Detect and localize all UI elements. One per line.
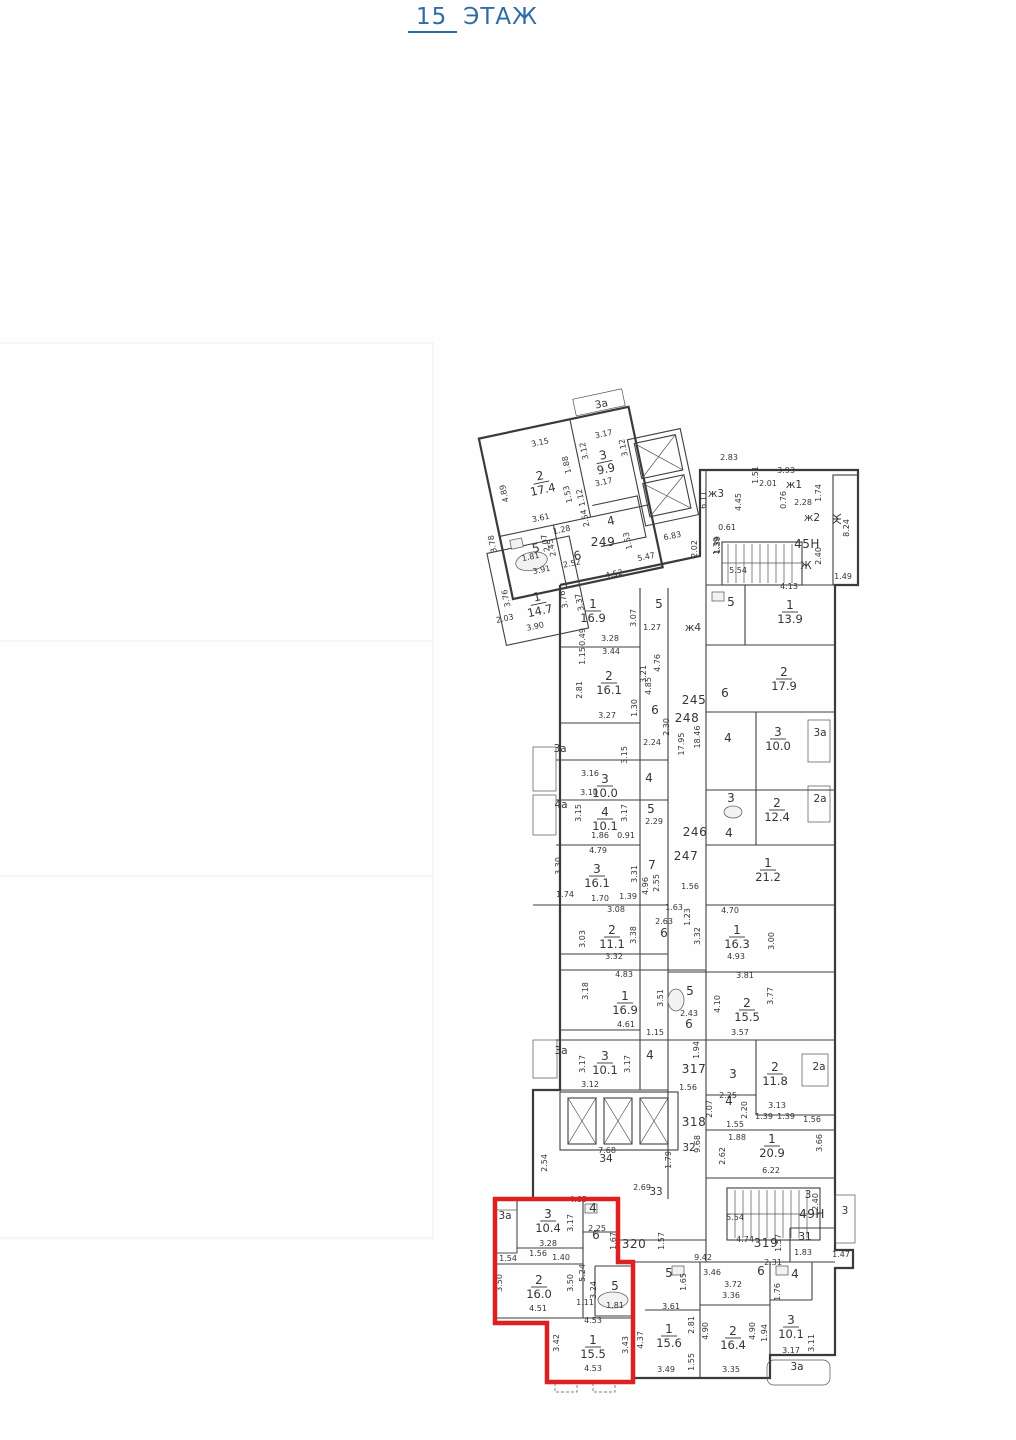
room-number-label: 3: [601, 772, 609, 786]
dimension-label: 3.03: [578, 930, 587, 948]
dimension-label: 3.31: [630, 865, 639, 883]
dimension-label: 2.81: [687, 1316, 696, 1334]
dimension-label: 3.00: [767, 932, 776, 950]
dimension-label: 3.50: [566, 1274, 575, 1292]
dimension-label: 3.15: [574, 804, 583, 822]
dimension-label: 3.17: [620, 804, 629, 822]
zone-label: ж1: [786, 479, 802, 491]
dimension-label: 3.17: [566, 1214, 575, 1232]
dimension-label: 1.81: [606, 1301, 624, 1310]
room-number-label: 6: [757, 1264, 765, 1278]
room-number-label: 2: [605, 669, 613, 683]
dimension-label: 2.83: [720, 453, 738, 462]
zone-label: Ж: [832, 513, 844, 525]
dimension-label: 1.94: [692, 1041, 701, 1059]
dimension-label: 1.63: [665, 903, 683, 912]
dimension-label: 1.28: [552, 524, 571, 537]
room-number-label: 5: [655, 597, 663, 611]
dimension-label: 1.15: [578, 647, 587, 665]
zone-label: 3а: [790, 1361, 803, 1373]
room-number-label: 4: [646, 1048, 654, 1062]
dimension-label: 1.56: [681, 882, 699, 891]
apartment-number: 249: [591, 535, 615, 549]
dimension-label: 0.91: [617, 831, 635, 840]
zone-label: 2а: [813, 793, 826, 805]
room-number-label: 3: [598, 448, 608, 463]
room-area-label: 15.6: [656, 1336, 682, 1350]
apartment-number: 245: [682, 693, 706, 707]
dimension-label: 3.24: [589, 1281, 598, 1299]
dimension-label: 3.38: [629, 926, 638, 944]
dimension-label: 3.66: [815, 1134, 824, 1152]
room-number-label: 3: [544, 1207, 552, 1221]
room-number-label: 6: [572, 548, 582, 563]
room-number-label: 1: [589, 597, 597, 611]
dimension-label: 3.90: [526, 620, 545, 633]
room-area-label: 17.4: [529, 480, 557, 499]
room-number-label: 2: [729, 1324, 737, 1338]
dimension-label: 1.40: [552, 1253, 570, 1262]
dimension-label: 3.61: [531, 512, 550, 525]
room-number-label: 7: [648, 858, 656, 872]
dimension-label: 3.16: [581, 769, 599, 778]
dimension-label: 1.56: [679, 1083, 697, 1092]
room-number-label: 6: [660, 926, 668, 940]
dimension-label: 1.53: [622, 531, 635, 550]
elevator-shafts-lower: [560, 1092, 678, 1150]
apartment-number: 319: [754, 1236, 778, 1250]
apartment-number: 247: [674, 849, 698, 863]
room-number-label: 2: [535, 468, 545, 483]
room-number-label: 1: [589, 1333, 597, 1347]
dimension-label: 1.27: [643, 623, 661, 632]
room-area-label: 16.1: [584, 876, 610, 890]
dimension-label: 3.15: [620, 746, 629, 764]
dimension-label: 2.01: [759, 479, 777, 488]
dimension-label: 3.46: [703, 1268, 721, 1277]
dimension-label: 3.93: [777, 466, 795, 475]
room-area-label: 17.9: [771, 679, 797, 693]
zone-label: 3: [805, 1189, 812, 1201]
room-area-label: 16.3: [724, 937, 750, 951]
dimension-label: 3.18: [581, 982, 590, 1000]
apartment-number: 318: [682, 1115, 706, 1129]
room-area-label: 16.0: [526, 1287, 552, 1301]
dimension-label: 3.07: [629, 609, 638, 627]
room-area-label: 11.8: [762, 1074, 788, 1088]
dimension-label: 3.30: [554, 857, 563, 875]
dimension-label: 0.76: [779, 491, 788, 509]
dimension-label: 1.30: [630, 699, 639, 717]
dimension-label: 4.61: [617, 1020, 635, 1029]
dimension-label: 3.32: [693, 927, 702, 945]
dimension-label: 2.29: [645, 817, 663, 826]
dimension-label: 3.28: [601, 634, 619, 643]
dimension-label: 1.88: [728, 1133, 746, 1142]
dimension-label: 3.13: [768, 1101, 786, 1110]
dimension-label: 2.24: [643, 738, 661, 747]
room-number-label: 6: [592, 1228, 600, 1242]
dimension-label: 17.95: [677, 733, 686, 756]
room-number-label: 4: [606, 513, 616, 528]
room-number-label: 4: [791, 1267, 799, 1281]
dimension-label: 2.31: [764, 1258, 782, 1267]
room-area-label: 14.7: [526, 601, 554, 620]
room-number-label: 4: [724, 731, 732, 745]
dimension-label: 3.28: [539, 1239, 557, 1248]
apartment-number: 246: [683, 825, 707, 839]
dimension-label: 1.74: [814, 484, 823, 502]
apartment-number: 248: [675, 711, 699, 725]
room-number-label: 1: [621, 989, 629, 1003]
dimension-label: 4.83: [615, 970, 633, 979]
room-number-label: 1: [532, 589, 542, 604]
dimension-label: 3.57: [731, 1028, 749, 1037]
staircase-upper: [722, 542, 802, 585]
dimension-label: 1.56: [803, 1115, 821, 1124]
room-number-label: 3: [593, 862, 601, 876]
room-area-label: 13.9: [777, 612, 803, 626]
dimension-label: 3.81: [736, 971, 754, 980]
dimension-label: 3.17: [594, 476, 613, 489]
dimension-label: 4.96: [641, 877, 650, 895]
room-number-label: 4: [601, 805, 609, 819]
dimension-label: 4.10: [713, 995, 722, 1013]
scanned-floor-plan-page: 15ЭТАЖ: [0, 0, 1016, 1440]
zone-label: 31: [798, 1231, 811, 1243]
room-number-label: 3: [601, 1049, 609, 1063]
dimension-label: 3.17: [782, 1346, 800, 1355]
dimension-label: 4.90: [701, 1322, 710, 1340]
elevator-shafts-upper: [627, 429, 698, 526]
room-area-label: 10.0: [592, 786, 618, 800]
dimension-label: 2.28: [794, 498, 812, 507]
room-number-label: 5: [727, 595, 735, 609]
room-number-label: 2: [771, 1060, 779, 1074]
room-area-label: 10.1: [592, 819, 618, 833]
room-number-label: 3: [727, 791, 735, 805]
room-number-label: 1: [786, 598, 794, 612]
dimension-label: 2.62: [718, 1147, 727, 1165]
dimension-label: 3.43: [621, 1336, 630, 1354]
dimension-label: 4.37: [636, 1331, 645, 1349]
zone-label: 34: [599, 1153, 613, 1165]
dimension-label: 4.51: [529, 1304, 547, 1313]
zone-label: 3: [842, 1205, 849, 1217]
dimension-label: 3.77: [766, 987, 775, 1005]
room-area-label: 16.1: [596, 683, 622, 697]
room-area-label: 15.5: [580, 1347, 606, 1361]
dimension-label: 1.39: [619, 892, 637, 901]
dimension-label: 2.30: [662, 718, 671, 736]
dimension-label: 1.94: [760, 1324, 769, 1342]
room-number-label: 3: [774, 725, 782, 739]
zone-label: 3а: [554, 1045, 567, 1057]
room-number-label: 1: [665, 1322, 673, 1336]
zone-label: 32: [682, 1142, 695, 1154]
dimension-label: 1.55: [687, 1353, 696, 1371]
dimension-label: 1.74: [556, 890, 574, 899]
room-number-label: 2: [608, 923, 616, 937]
room-number-label: 5: [647, 802, 655, 816]
dimension-label: 3.17: [594, 428, 613, 441]
dimension-label: 2.69: [633, 1183, 651, 1192]
dimension-label: 4.93: [727, 952, 745, 961]
apartment-number: 317: [682, 1062, 706, 1076]
room-area-label: 10.0: [765, 739, 791, 753]
zone-label: 3а: [553, 743, 566, 755]
zone-label: ж4: [685, 622, 701, 634]
dimension-label: 0.49: [578, 628, 587, 646]
zone-label: Ж: [800, 560, 812, 572]
dimension-label: 4.70: [721, 906, 739, 915]
room-number-label: 2: [743, 996, 751, 1010]
dimension-label: 3.78: [486, 534, 499, 553]
dimension-label: 4.76: [653, 654, 662, 672]
room-area-label: 20.9: [759, 1146, 785, 1160]
room-number-label: 6: [651, 703, 659, 717]
zone-label: 33: [649, 1186, 662, 1198]
floor-plan-drawing: 3.154.891.881.533.611.282.452.071.812.52…: [0, 0, 1016, 1440]
dimension-label: 6.22: [762, 1166, 780, 1175]
room-number-label: 1: [768, 1132, 776, 1146]
dimension-label: 1.55: [726, 1120, 744, 1129]
room-number-label: 3: [729, 1067, 737, 1081]
room-number-label: 5: [611, 1279, 619, 1293]
room-area-label: 11.1: [599, 937, 625, 951]
dimension-label: 6.83: [663, 530, 682, 543]
dimension-label: 5.54: [729, 566, 747, 575]
dimension-label: 1.56: [529, 1249, 547, 1258]
room-number-label: 4: [645, 771, 653, 785]
room-area-label: 12.4: [764, 810, 790, 824]
dimension-label: 2.20: [740, 1101, 749, 1119]
room-number-label: 2: [773, 796, 781, 810]
scan-artifacts: [0, 343, 433, 1238]
dimension-label: 1.65: [679, 1273, 688, 1291]
dimension-label: 4.13: [780, 582, 798, 591]
dimension-label: 1.39: [777, 1112, 795, 1121]
dimension-label: 2.07: [539, 533, 552, 552]
room-number-label: 5: [686, 984, 694, 998]
dimension-label: 3.08: [607, 905, 625, 914]
room-area-label: 16.4: [720, 1338, 746, 1352]
room-number-label: 1: [733, 923, 741, 937]
dimension-label: 2.54: [540, 1154, 549, 1172]
dimension-label: 3.15: [530, 436, 549, 449]
room-number-label: 3: [787, 1313, 795, 1327]
room-area-label: 15.5: [734, 1010, 760, 1024]
zone-label: 3а: [813, 727, 826, 739]
dimension-label: 1.49: [834, 572, 852, 581]
room-area-label: 10.1: [592, 1063, 618, 1077]
dimension-label: 1.15: [646, 1028, 664, 1037]
dimension-label: 2.07: [705, 1100, 714, 1118]
dimension-label: 1.79: [664, 1151, 673, 1169]
dimension-label: 1.70: [591, 894, 609, 903]
dimension-label: 2.63: [655, 917, 673, 926]
dimension-label: 6.11: [699, 491, 708, 509]
dimension-label: 5.24: [578, 1264, 587, 1282]
room-number-label: 4: [725, 826, 733, 840]
dimension-label: 1.88: [561, 455, 574, 474]
dimension-label: 3.51: [656, 989, 665, 1007]
room-area-label: 10.4: [535, 1221, 561, 1235]
zone-label: 2а: [812, 1061, 825, 1073]
dimension-label: 1.53: [562, 485, 575, 504]
dimension-label: 9.42: [694, 1253, 712, 1262]
room-area-label: 10.1: [778, 1327, 804, 1341]
dimension-label: 1.23: [683, 908, 692, 926]
dimension-label: 3.49: [657, 1365, 675, 1374]
room-number-label: 2: [535, 1273, 543, 1287]
apartment-number: 320: [622, 1237, 646, 1251]
dimension-label: 2.81: [575, 681, 584, 699]
dimension-label: 2.55: [652, 874, 661, 892]
dimension-label: 3.35: [722, 1365, 740, 1374]
dimension-label: 3.17: [578, 1055, 587, 1073]
dimension-label: 3.72: [724, 1280, 742, 1289]
dimension-label: 4.53: [584, 1316, 602, 1325]
room-number-label: 6: [721, 686, 729, 700]
dimension-label: 1.39: [712, 537, 721, 555]
dimension-label: 1.76: [773, 1283, 782, 1301]
zone-label: ж2: [804, 512, 820, 524]
dimension-label: 1.54: [499, 1254, 517, 1263]
dimension-label: 2.02: [690, 540, 699, 558]
apartment-number: 45Н: [794, 537, 820, 551]
dimension-label: 3.37: [573, 593, 586, 612]
room-number-label: 4: [589, 1201, 597, 1215]
dimension-label: 3.36: [722, 1291, 740, 1300]
dimension-label: 4.79: [589, 846, 607, 855]
dimension-label: 0.61: [718, 523, 736, 532]
dimension-label: 2.03: [495, 612, 514, 625]
dimension-label: 3.11: [807, 1334, 816, 1352]
dimension-label: 4.90: [748, 1322, 757, 1340]
room-area-label: 16.9: [580, 611, 606, 625]
dimension-label: 5.54: [726, 1213, 744, 1222]
zone-label: 4а: [554, 799, 567, 811]
dimension-label: 3.42: [552, 1334, 561, 1352]
dimension-label: 1.83: [794, 1248, 812, 1257]
room-area-label: 16.9: [612, 1003, 638, 1017]
dimension-label: 3.44: [602, 647, 620, 656]
dimension-label: 4.45: [734, 493, 743, 511]
dimension-label: 3.32: [605, 952, 623, 961]
dimension-label: 4.74: [736, 1235, 754, 1244]
room-area-label: 21.2: [755, 870, 781, 884]
dimension-label: 18.46: [693, 726, 702, 749]
zone-label: ж3: [708, 488, 724, 500]
dimension-label: 3.61: [662, 1302, 680, 1311]
dimension-label: 3.12: [581, 1080, 599, 1089]
dimension-label: 4.85: [644, 677, 653, 695]
dimension-label: 3.27: [598, 711, 616, 720]
zone-label: 3а: [498, 1210, 511, 1222]
dimension-label: 3.12: [578, 441, 591, 460]
dimension-label: 4.89: [498, 484, 511, 503]
room-number-label: 2: [780, 665, 788, 679]
room-number-label: 1: [764, 856, 772, 870]
dimension-label: 4.53: [584, 1364, 602, 1373]
room-area-label: 9.9: [596, 460, 617, 477]
room-number-label: 6: [685, 1017, 693, 1031]
dimension-label: 1.47: [832, 1250, 850, 1259]
room-number-label: 4: [725, 1094, 733, 1108]
dimension-label: 5.47: [636, 551, 655, 564]
dimension-label: 1.39: [755, 1112, 773, 1121]
room-number-label: 5: [665, 1266, 673, 1280]
dimension-label: 3.17: [623, 1055, 632, 1073]
rotated-upper-block: 3.154.891.881.533.611.282.452.071.812.52…: [454, 379, 716, 647]
dimension-label: 4.52: [604, 568, 623, 581]
apartment-number: 49Н: [799, 1207, 825, 1221]
dimension-label: 1.57: [657, 1232, 666, 1250]
